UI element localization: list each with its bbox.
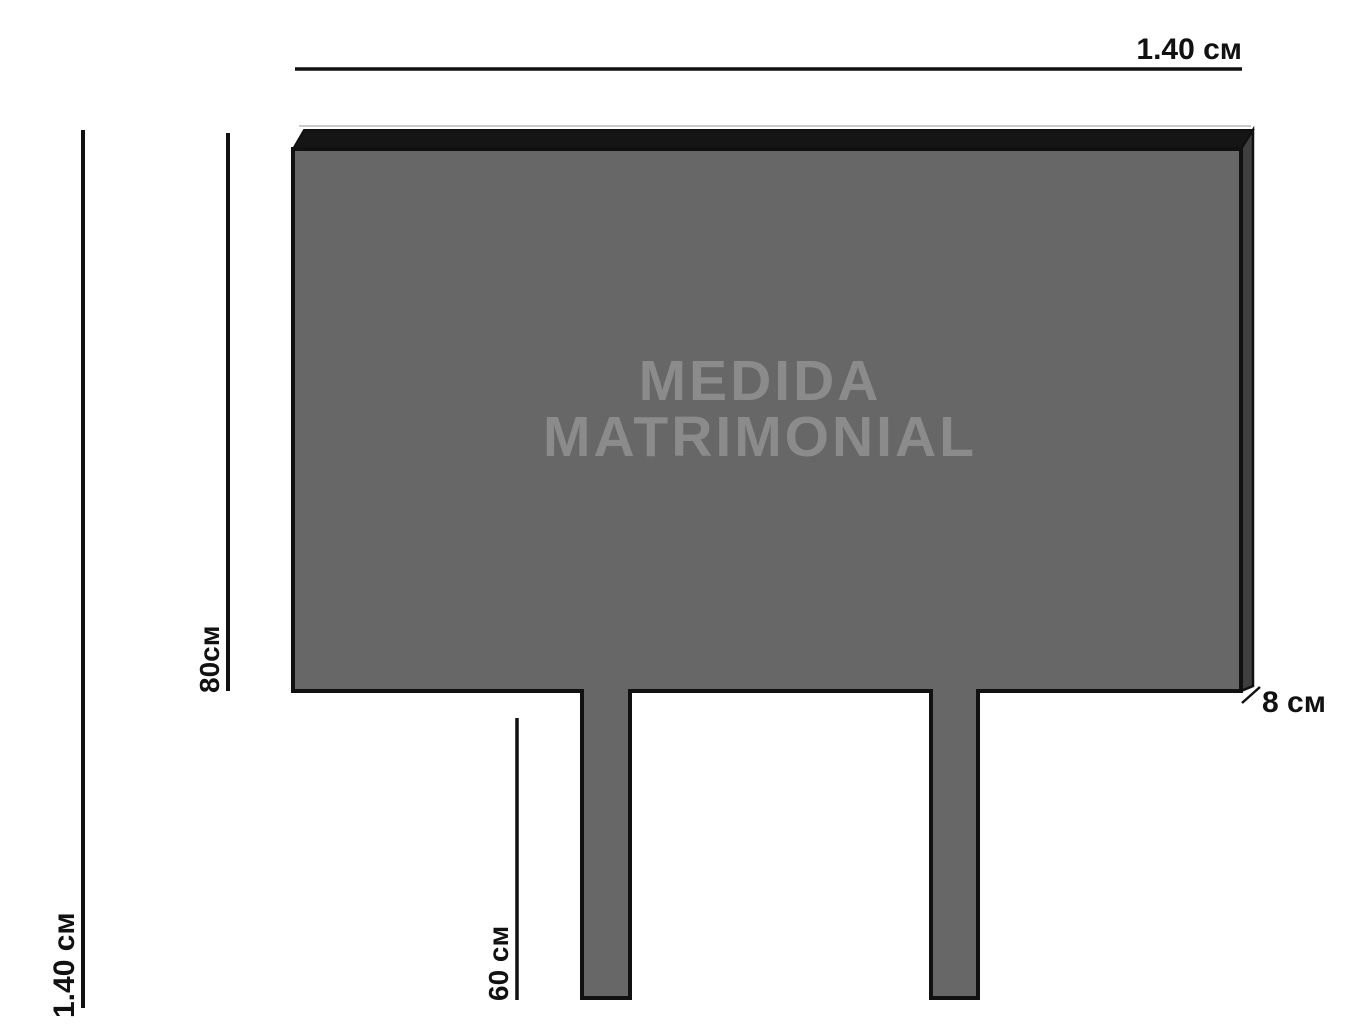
headboard-title-line2: MATRIMONIAL [543, 405, 977, 469]
diagram-canvas: MEDIDA MATRIMONIAL 1.40 см 1.40 см 80см … [0, 0, 1348, 1035]
width-dimension-label: 1.40 см [1136, 33, 1242, 66]
legs-height-dimension-label: 60 см [483, 926, 514, 1001]
headboard-height-dimension-label: 80см [194, 626, 225, 693]
headboard-dimension-diagram: MEDIDA MATRIMONIAL 1.40 см 1.40 см 80см … [0, 0, 1348, 1035]
depth-dimension-label: 8 см [1262, 686, 1326, 719]
total-height-dimension-label: 1.40 см [48, 912, 81, 1018]
headboard-top-face [293, 130, 1253, 149]
headboard-title-line1: MEDIDA [639, 349, 882, 413]
